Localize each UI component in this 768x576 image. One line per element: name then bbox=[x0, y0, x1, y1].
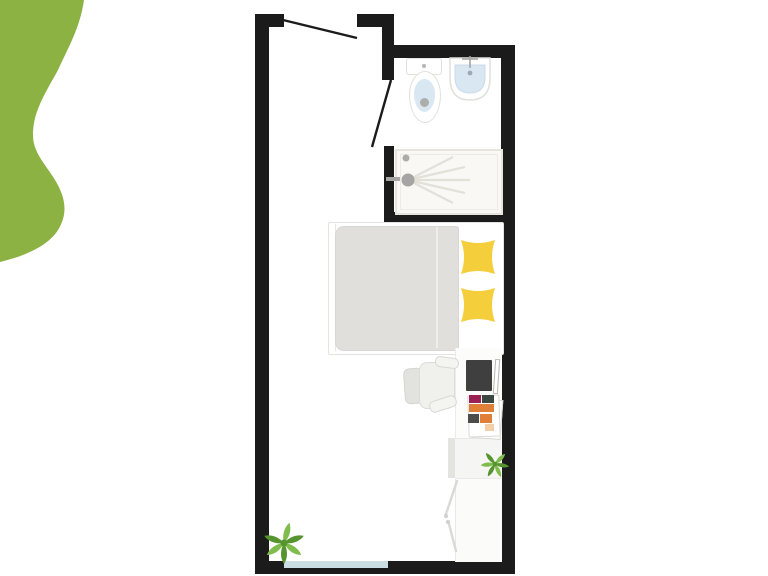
shower-spray bbox=[408, 157, 470, 203]
wardrobe-doors bbox=[440, 475, 505, 560]
floor-plan-canvas bbox=[0, 0, 768, 576]
pillows bbox=[457, 237, 499, 329]
stationery-item-pink bbox=[469, 395, 481, 403]
washbasin bbox=[447, 56, 493, 104]
shower-details bbox=[395, 149, 499, 211]
toilet-flush-button bbox=[422, 64, 426, 68]
desk-side-panel bbox=[448, 438, 455, 478]
bed-duvet bbox=[335, 226, 459, 351]
stationery-item-orange bbox=[469, 404, 494, 412]
stationery-item-gray bbox=[468, 414, 479, 423]
shower-head-icon bbox=[402, 174, 415, 187]
stationery-item-orange bbox=[480, 414, 492, 423]
stationery-item-teal bbox=[482, 395, 494, 403]
entrance-door-swing bbox=[283, 20, 357, 38]
pillow-bottom bbox=[461, 288, 495, 322]
pillow-top bbox=[461, 240, 495, 274]
bed-duvet-fold bbox=[436, 227, 438, 348]
stationery-item-peach bbox=[485, 424, 494, 431]
toilet-drain bbox=[420, 98, 429, 107]
plant-small bbox=[480, 449, 510, 479]
shower-drain-icon bbox=[403, 155, 410, 162]
laptop-icon bbox=[466, 360, 492, 391]
bathroom-door-swing bbox=[372, 80, 391, 147]
plant-large bbox=[262, 521, 306, 565]
